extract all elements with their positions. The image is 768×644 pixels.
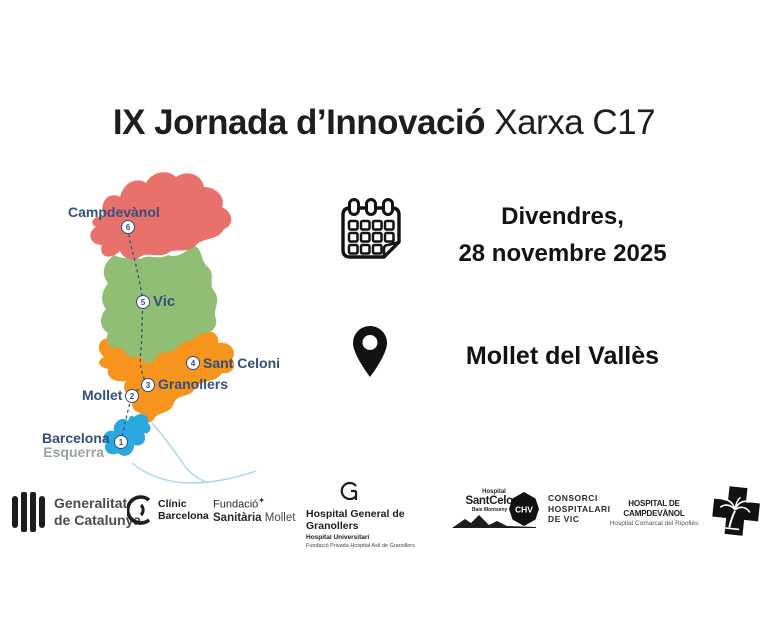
coastline [152,423,208,483]
clinic-line1: Clínic [158,498,209,510]
marker-number: 4 [191,359,195,368]
map-marker-mollet: 2 [125,389,139,403]
map-label-sant-celoni: Sant Celoni [203,355,280,371]
fundacio-line2-light: Mollet [262,512,296,524]
chv-badge-text: CHV [515,505,533,515]
logo-chv-vic: CHV CONSORCI HOSPITALARI DE VIC [509,492,610,526]
page-title: IX Jornada d’Innovació Xarxa C17 [0,103,768,143]
map-label-granollers: Granollers [158,376,228,392]
map-label-mollet: Mollet [82,387,122,403]
event-date: Divendres, 28 novembre 2025 [425,198,700,272]
marker-number: 6 [126,223,130,232]
star-icon: ✦ [258,496,265,505]
fundacio-line1: Fundació [213,499,258,511]
logo-clinic-barcelona: Clínic Barcelona [127,494,209,526]
location-pin-icon [352,325,388,382]
event-day: Divendres, [425,198,700,235]
event-date-line: 28 novembre 2025 [425,235,700,272]
calendar-icon [340,198,402,264]
map-label-vic: Vic [153,293,175,310]
event-venue: Mollet del Vallès [425,342,700,371]
title-suffix: Xarxa C17 [485,103,655,142]
map-marker-vic: 5 [136,295,150,309]
fundacio-line2-bold: Sanitària [213,512,262,524]
marker-number: 1 [119,438,123,447]
map-marker-campdevanol: 6 [121,220,135,234]
senyera-bars-icon [12,492,46,532]
region-barcelona [104,414,151,456]
campdevanol-line1: HOSPITAL DE CAMPDEVÀNOL [605,498,704,518]
map-marker-granollers: 3 [141,378,155,392]
granollers-line2: Hospital Universitari [306,534,446,541]
coastline-2 [132,463,256,483]
clinic-c-icon [127,494,153,526]
c17-map: 1 2 3 4 5 6 Campdevànol Vic Sant Celoni … [40,165,280,485]
granollers-line3: Fundació Privada Hospital Asil de Granol… [306,543,446,549]
title-main: IX Jornada d’Innovació [113,103,485,142]
map-label-campdevanol: Campdevànol [68,204,160,220]
granollers-line1: Hospital General de Granollers [306,508,446,532]
poster: IX Jornada d’Innovació Xarxa C17 1 2 3 4… [0,0,768,644]
map-marker-barcelona: 1 [114,435,128,449]
santceloni-sant: Sant [465,495,489,507]
granollers-g-icon [340,481,360,501]
logo-hospital-granollers: Hospital General de Granollers Hospital … [306,481,446,549]
logo-generalitat: Generalitat de Catalunya [12,492,141,532]
palm-cross-icon [706,485,766,537]
campdevanol-line2: Hospital Comarcal del Ripollès [602,520,706,527]
map-label-esquerra: Esquerra [42,444,104,460]
chv-badge-icon: CHV [509,492,539,526]
logo-fundacio-sanitaria-mollet: Fundació✦ Sanitària Mollet [213,494,295,525]
map-marker-sant-celoni: 4 [186,356,200,370]
clinic-line2: Barcelona [158,510,209,522]
marker-number: 2 [130,392,134,401]
marker-number: 5 [141,298,145,307]
marker-number: 3 [146,381,150,390]
logo-hospital-campdevanol: HOSPITAL DE CAMPDEVÀNOL Hospital Comarca… [602,498,706,527]
